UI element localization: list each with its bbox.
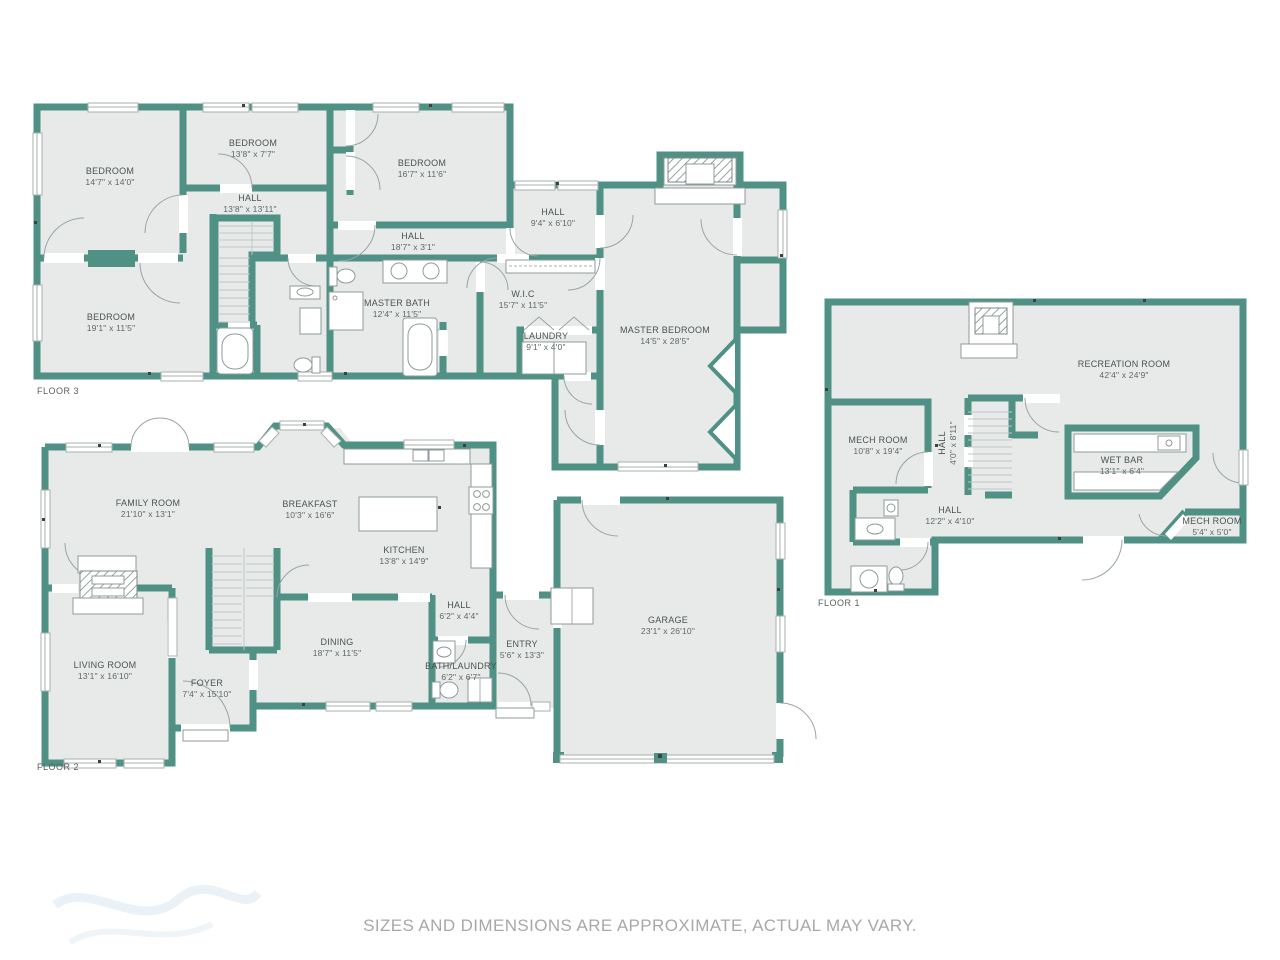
floor1-windows xyxy=(1239,450,1248,485)
room-label-garage: GARAGE23'1" x 26'10" xyxy=(641,615,695,637)
cased-opening xyxy=(168,598,177,656)
kitchen-island xyxy=(359,497,437,531)
floor3-label: FLOOR 3 xyxy=(37,386,79,396)
stoop xyxy=(496,708,534,718)
room-label-laundry: LAUNDRY9'1" x 4'0" xyxy=(524,331,569,353)
room-label-bedroom-4: BEDROOM16'7" x 11'6" xyxy=(398,158,447,180)
sink-icon xyxy=(413,450,428,461)
room-label-hall-3a: HALL13'8" x 13'11" xyxy=(223,193,277,215)
floorplan-page: BEDROOM14'7" x 14'0" BEDROOM13'8" x 7'7"… xyxy=(0,0,1280,960)
kitchen-counter xyxy=(471,464,492,568)
toilet-icon xyxy=(432,682,440,698)
room-label-foyer: FOYER7'4" x 15'10" xyxy=(182,678,231,700)
toilet-icon xyxy=(889,567,903,585)
room-label-hall-2: HALL6'2" x 4'4" xyxy=(439,600,478,622)
room-label-wic: W.I.C15'7" x 11'5" xyxy=(499,289,548,311)
fireplace-icon xyxy=(655,158,745,204)
stoop xyxy=(183,730,228,741)
room-label-living-room: LIVING ROOM13'1" x 16'10" xyxy=(74,660,137,682)
room-label-dining: DINING18'7" x 11'5" xyxy=(313,637,362,659)
room-label-hall-1a: HALL4'0" x 8'11" xyxy=(937,421,959,465)
room-label-entry: ENTRY5'6" x 13'3" xyxy=(500,639,544,661)
vanity-icon xyxy=(855,518,895,540)
sink-icon xyxy=(433,641,455,663)
sink-icon xyxy=(1158,436,1180,450)
shower-icon xyxy=(300,308,321,334)
room-label-bath-laundry: BATH/LAUNDRY6'2" x 6'7" xyxy=(425,661,497,683)
room-label-hall-3c: HALL9'4" x 6'10" xyxy=(531,207,575,229)
laundry-tub-icon xyxy=(884,500,898,516)
fireplace-icon xyxy=(961,302,1017,358)
chimney-chase xyxy=(88,250,135,267)
kitchen-counter xyxy=(344,449,470,464)
room-label-recreation-room: RECREATION ROOM42'4" x 24'9" xyxy=(1078,359,1171,381)
toilet-icon xyxy=(329,267,337,286)
shower-icon xyxy=(329,292,363,330)
toilet-icon xyxy=(312,357,320,373)
room-label-master-bath: MASTER BATH12'4" x 11'5" xyxy=(364,298,430,320)
room-label-mech-room-2: MECH ROOM5'4" x 5'0" xyxy=(1182,516,1241,538)
disclaimer-text: SIZES AND DIMENSIONS ARE APPROXIMATE, AC… xyxy=(0,916,1280,936)
room-label-bedroom-2: BEDROOM13'8" x 7'7" xyxy=(229,138,277,160)
room-label-family-room: FAMILY ROOM21'10" x 13'1" xyxy=(116,498,180,520)
room-label-hall-3b: HALL18'7" x 3'1" xyxy=(391,231,435,253)
room-label-kitchen: KITCHEN13'8" x 14'9" xyxy=(379,545,428,567)
room-label-hall-1b: HALL12'2" x 4'10" xyxy=(925,505,974,527)
room-label-master-bedroom: MASTER BEDROOM14'5" x 28'5" xyxy=(620,325,710,347)
floor1-label: FLOOR 1 xyxy=(818,598,860,608)
room-label-mech-room: MECH ROOM10'8" x 19'4" xyxy=(848,435,907,457)
room-label-bedroom-1: BEDROOM14'7" x 14'0" xyxy=(85,166,134,188)
room-label-wet-bar: WET BAR13'1" x 6'4" xyxy=(1100,455,1144,477)
double-vanity-icon xyxy=(383,260,447,283)
stove-icon xyxy=(469,487,493,514)
room-label-breakfast: BREAKFAST10'3" x 16'6" xyxy=(282,499,337,521)
floorplan-canvas xyxy=(0,0,1280,960)
room-label-bedroom-3: BEDROOM19'1" x 11'5" xyxy=(87,312,136,334)
fireplace-icon xyxy=(73,556,143,614)
floor2-label: FLOOR 2 xyxy=(37,762,79,772)
